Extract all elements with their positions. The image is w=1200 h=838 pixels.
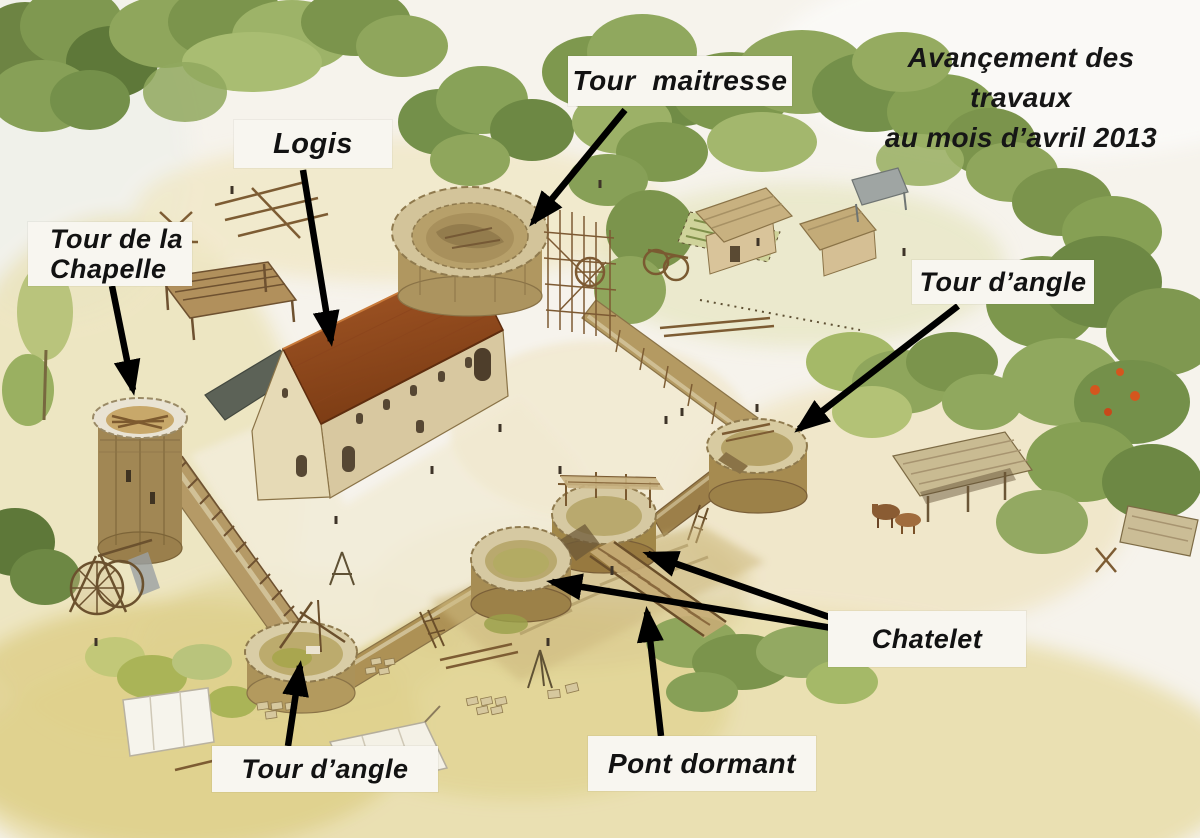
label-logis: Logis bbox=[234, 120, 392, 168]
tour-maitresse-drawing bbox=[392, 187, 548, 316]
label-tour-maitresse: Tour maitresse bbox=[568, 56, 792, 106]
trees-top-band bbox=[109, 0, 448, 122]
label-tour-chapelle: Tour de la Chapelle bbox=[28, 222, 192, 286]
tour-chapelle-drawing bbox=[93, 398, 187, 564]
castle-progress-diagram: Avançement des travaux au mois d’avril 2… bbox=[0, 0, 1200, 838]
page-title: Avançement des travaux au mois d’avril 2… bbox=[856, 38, 1186, 158]
label-tour-angle-bottom: Tour d’angle bbox=[212, 746, 438, 792]
label-tour-angle-right: Tour d’angle bbox=[912, 260, 1094, 304]
label-tour-chapelle-line-1: Tour de la bbox=[50, 224, 183, 254]
title-line-2: travaux bbox=[856, 78, 1186, 118]
title-line-1: Avançement des bbox=[856, 38, 1186, 78]
label-pont-dormant: Pont dormant bbox=[588, 736, 816, 791]
label-chatelet: Chatelet bbox=[828, 611, 1026, 667]
title-line-3: au mois d’avril 2013 bbox=[856, 118, 1186, 158]
label-tour-chapelle-line-2: Chapelle bbox=[50, 254, 167, 284]
